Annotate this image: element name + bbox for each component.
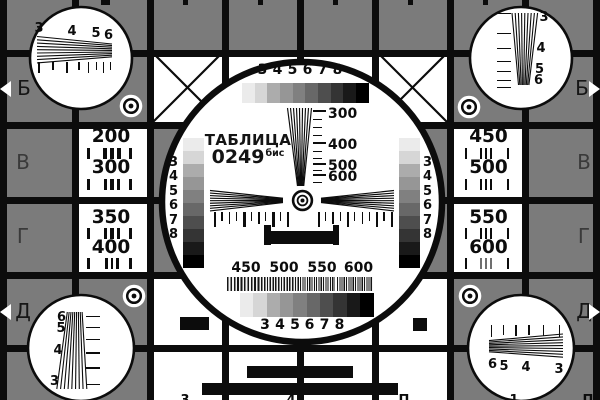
edge-stub-top <box>101 0 110 5</box>
black-square-right <box>413 318 427 331</box>
edge-glyph-bottom: 1 <box>506 394 522 400</box>
corner-dash-tr <box>497 61 512 63</box>
panel-tick-group <box>490 148 492 159</box>
black-rect-left <box>180 317 209 330</box>
panel-tick-group <box>110 148 114 159</box>
fan-tick-right <box>318 212 320 227</box>
grayscale-step-top <box>293 83 306 103</box>
fan-tick-left <box>287 212 289 227</box>
panel-tick-single <box>507 179 509 190</box>
corner-tick-tl <box>88 62 89 73</box>
corner-dash-tr <box>497 13 512 15</box>
fan-tick-left <box>280 212 281 221</box>
grayscale-step-right <box>399 138 420 151</box>
scale-tick-short <box>313 158 322 160</box>
step-digit-left: 8 <box>158 228 178 241</box>
right-panel-label: 450 <box>467 128 511 145</box>
panel-tick-single <box>87 148 90 159</box>
step-digit-left: 3 <box>158 156 178 169</box>
corner-digit-bl: 3 <box>49 375 61 388</box>
corner-circle-bottom-left <box>26 293 138 400</box>
corner-circle-bottom-right <box>466 293 578 400</box>
panel-tick-single <box>465 179 467 190</box>
corner-dash-bl <box>86 327 100 329</box>
fan-tick-left <box>243 212 245 227</box>
corner-dash-tr <box>497 80 512 82</box>
corner-digit-tl: 5 <box>90 27 102 40</box>
row-letter-left: Г <box>11 226 35 246</box>
panel-tick-single <box>129 258 132 269</box>
bottom-bar-short <box>247 366 353 378</box>
fan-tick-left <box>265 212 266 221</box>
panel-tick-single <box>87 228 90 239</box>
edge-glyph-bottom: П <box>580 394 596 400</box>
step-digit-left: 4 <box>158 170 178 183</box>
left-panel-label: 300 <box>89 159 133 176</box>
panel-tick-group <box>110 228 113 239</box>
grayscale-step-bottom <box>240 293 254 317</box>
panel-tick-group <box>117 148 121 159</box>
panel-tick-group <box>110 179 113 190</box>
scale-tick-short <box>313 170 322 172</box>
grayscale-step-bottom <box>253 293 267 317</box>
fan-tick-left <box>251 212 252 221</box>
card-code: 0249 <box>212 146 265 168</box>
grayscale-step-top <box>331 83 344 103</box>
step-digit-right: 3 <box>423 156 443 169</box>
fan-tick-right <box>354 212 355 221</box>
panel-tick-group <box>490 258 492 269</box>
panel-tick-single <box>465 148 467 159</box>
corner-digit-tr: 4 <box>535 42 547 55</box>
edge-stub-top <box>183 0 188 5</box>
step-digit-top: 5 <box>285 64 300 77</box>
grayscale-step-left <box>183 177 204 190</box>
left-panel-label: 350 <box>89 209 133 226</box>
panel-tick-group <box>485 258 487 269</box>
step-digit-left: 5 <box>158 185 178 198</box>
grayscale-step-right <box>399 177 420 190</box>
scale-tick-long <box>313 174 326 176</box>
edge-stub-top <box>483 0 488 5</box>
step-digit-right: 8 <box>423 228 443 241</box>
corner-tick-tl <box>78 62 80 70</box>
burst-scale-label: 500 <box>267 261 301 275</box>
center-target-icon <box>286 184 319 217</box>
edge-stub-top <box>408 0 413 5</box>
corner-digit-tr: 3 <box>538 11 550 24</box>
card-code-line: 0249бис <box>198 148 298 170</box>
panel-tick-group <box>480 228 482 239</box>
step-digit-bottom: 6 <box>302 319 317 332</box>
scale-tick-long <box>313 110 326 112</box>
scale-tick-long <box>313 163 326 165</box>
panel-tick-single <box>129 228 132 239</box>
step-digit-bottom: 4 <box>273 319 288 332</box>
panel-tick-group <box>116 258 118 269</box>
corner-dash-bl <box>86 316 100 318</box>
right-panel-label: 550 <box>467 209 511 226</box>
corner-dash-bl <box>86 384 100 386</box>
corner-digit-br: 6 <box>487 358 499 371</box>
arrow-left-icon <box>0 304 11 320</box>
row-letter-left: В <box>11 152 35 172</box>
grayscale-step-right <box>399 242 420 255</box>
corner-tick-br <box>559 325 561 337</box>
fan-tick-left <box>214 212 216 227</box>
burst-grating <box>264 277 299 291</box>
arrow-left-icon <box>0 81 11 97</box>
panel-tick-group <box>104 228 107 239</box>
panel-tick-single <box>129 179 132 190</box>
grayscale-step-top <box>255 83 268 103</box>
arrow-right-icon <box>589 81 600 97</box>
row-letter-right: В <box>572 152 596 172</box>
grayscale-step-bottom <box>267 293 281 317</box>
grayscale-step-left <box>183 255 204 268</box>
scale-tick-short <box>313 182 322 184</box>
corner-digit-bl: 5 <box>55 322 67 335</box>
corner-tick-tl <box>38 62 40 73</box>
grayscale-step-right <box>399 151 420 164</box>
test-card: 3456783004005006003344556677884505005506… <box>0 0 600 400</box>
panel-tick-group <box>485 148 487 159</box>
grayscale-step-top <box>343 83 356 103</box>
grayscale-step-top <box>267 83 280 103</box>
fan-tick-left <box>221 212 222 221</box>
panel-tick-group <box>105 258 107 269</box>
panel-tick-group <box>480 258 482 269</box>
fan-tick-left <box>229 212 231 224</box>
left-wedge-fan <box>205 185 290 220</box>
panel-tick-group <box>485 228 487 239</box>
fan-tick-right <box>369 212 370 221</box>
edge-glyph-bottom: 4 <box>283 394 299 400</box>
row-letter-left: Д <box>11 301 35 321</box>
grayscale-step-bottom <box>320 293 334 317</box>
step-digit-right: 5 <box>423 185 443 198</box>
grayscale-step-left <box>183 229 204 242</box>
grayscale-step-bottom <box>333 293 347 317</box>
grayscale-step-top <box>242 83 255 103</box>
step-digit-bottom: 7 <box>317 319 332 332</box>
step-digit-right: 7 <box>423 214 443 227</box>
panel-tick-single <box>507 258 509 269</box>
step-digit-top: 7 <box>315 64 330 77</box>
grayscale-step-bottom <box>307 293 321 317</box>
corner-digit-br: 3 <box>553 363 565 376</box>
corner-tick-tl <box>103 62 104 73</box>
burst-scale-label: 550 <box>305 261 339 275</box>
grayscale-step-bottom <box>280 293 294 317</box>
burst-scale-label: 450 <box>229 261 263 275</box>
corner-digit-br: 5 <box>498 360 510 373</box>
grayscale-step-left <box>183 216 204 229</box>
grayscale-step-top <box>356 83 369 103</box>
corner-tick-br <box>528 325 530 335</box>
fan-tick-left <box>272 212 274 227</box>
panel-tick-group <box>117 179 120 190</box>
corner-tick-tl <box>110 62 111 70</box>
reference-bar-cap <box>333 225 340 245</box>
step-digit-left: 6 <box>158 199 178 212</box>
vertical-scale-label: 400 <box>328 138 364 152</box>
step-digit-top: 6 <box>300 64 315 77</box>
grayscale-step-right <box>399 190 420 203</box>
fan-tick-right <box>362 212 364 224</box>
corner-tick-br <box>503 325 505 335</box>
grayscale-step-top <box>305 83 318 103</box>
panel-tick-single <box>129 148 132 159</box>
step-digit-bottom: 3 <box>258 319 273 332</box>
right-panel-label: 600 <box>467 239 511 256</box>
grayscale-step-left <box>183 242 204 255</box>
corner-digit-tr: 6 <box>533 74 545 87</box>
scale-tick-short <box>313 151 322 153</box>
left-panel-label: 400 <box>89 239 133 256</box>
panel-tick-single <box>507 148 509 159</box>
step-digit-left: 7 <box>158 214 178 227</box>
reference-bar-cap <box>264 225 271 245</box>
row-letter-left: Б <box>12 78 36 98</box>
step-digit-bottom: 5 <box>288 319 303 332</box>
grayscale-step-top <box>280 83 293 103</box>
corner-tick-br <box>543 325 545 336</box>
edge-glyph-bottom: 3 <box>177 394 193 400</box>
panel-tick-single <box>87 179 90 190</box>
panel-tick-group <box>104 179 107 190</box>
corner-digit-br: 4 <box>520 361 532 374</box>
panel-tick-group <box>103 148 107 159</box>
vertical-scale-label: 300 <box>328 107 364 121</box>
corner-digit-tl: 3 <box>33 22 45 35</box>
corner-dash-bl <box>86 367 100 369</box>
fan-tick-left <box>236 212 237 221</box>
fan-tick-left <box>258 212 260 224</box>
burst-scale-label: 600 <box>342 261 376 275</box>
corner-tick-tl <box>52 62 54 70</box>
panel-tick-group <box>111 258 113 269</box>
panel-tick-single <box>465 258 467 269</box>
fan-tick-right <box>340 212 341 221</box>
burst-grating <box>227 277 263 291</box>
edge-stub-top <box>258 0 263 5</box>
bottom-bar-long <box>202 383 398 395</box>
panel-tick-single <box>87 258 90 269</box>
panel-tick-group <box>485 179 487 190</box>
step-digit-top: 4 <box>270 64 285 77</box>
fan-tick-right <box>383 212 384 221</box>
corner-tick-br <box>515 325 517 336</box>
reference-bar <box>264 231 339 244</box>
fan-tick-right <box>376 212 378 227</box>
scale-tick-short <box>313 127 322 129</box>
corner-digit-bl: 4 <box>52 344 64 357</box>
fan-tick-right <box>332 212 334 224</box>
fan-tick-right <box>325 212 326 221</box>
grayscale-step-right <box>399 229 420 242</box>
grayscale-step-top <box>318 83 331 103</box>
corner-dash-bl <box>86 339 100 341</box>
step-digit-top: 3 <box>255 64 270 77</box>
grayscale-step-bottom <box>347 293 361 317</box>
grayscale-step-right <box>399 255 420 268</box>
scale-tick-short <box>313 135 322 137</box>
grayscale-step-right <box>399 216 420 229</box>
panel-tick-group <box>490 179 492 190</box>
fan-tick-right <box>347 212 349 227</box>
corner-digit-tl: 4 <box>66 25 78 38</box>
burst-grating <box>337 277 374 291</box>
edge-glyph-bottom: П <box>396 394 412 400</box>
scale-tick-long <box>313 142 326 144</box>
step-digit-bottom: 8 <box>332 319 347 332</box>
left-panel-label: 200 <box>89 128 133 145</box>
panel-tick-single <box>465 228 467 239</box>
card-title-block: ТАБЛИЦА 0249бис <box>198 132 298 170</box>
fan-tick-right <box>391 212 393 227</box>
edge-stub-top <box>333 0 338 5</box>
row-letter-right: Г <box>572 226 596 246</box>
step-digit-right: 6 <box>423 199 443 212</box>
grayscale-step-left <box>183 203 204 216</box>
grayscale-step-left <box>183 190 204 203</box>
corner-tick-br <box>491 325 493 337</box>
grayscale-step-right <box>399 203 420 216</box>
grayscale-step-bottom <box>293 293 307 317</box>
step-digit-top: 8 <box>330 64 345 77</box>
card-code-suffix: бис <box>265 148 284 159</box>
panel-tick-group <box>490 228 492 239</box>
corner-circle-top-right <box>467 4 577 114</box>
burst-grating <box>300 277 335 291</box>
corner-dash-tr <box>497 33 512 35</box>
corner-dash-tr <box>497 48 512 50</box>
grayscale-step-bottom <box>360 293 374 317</box>
grayscale-step-right <box>399 164 420 177</box>
corner-tick-tl <box>66 62 68 73</box>
vertical-scale-label: 600 <box>328 170 364 184</box>
corner-digit-tl: 6 <box>103 29 115 42</box>
panel-tick-group <box>480 179 482 190</box>
panel-tick-single <box>507 228 509 239</box>
panel-tick-group <box>117 228 120 239</box>
step-digit-right: 4 <box>423 170 443 183</box>
right-panel-label: 500 <box>467 159 511 176</box>
corner-dash-bl <box>86 352 100 354</box>
scale-tick-short <box>313 119 322 121</box>
panel-tick-group <box>480 148 482 159</box>
corner-dash-tr <box>497 87 512 89</box>
arrow-right-icon <box>589 304 600 320</box>
corner-tick-tl <box>96 62 97 70</box>
corner-dash-tr <box>497 71 512 73</box>
